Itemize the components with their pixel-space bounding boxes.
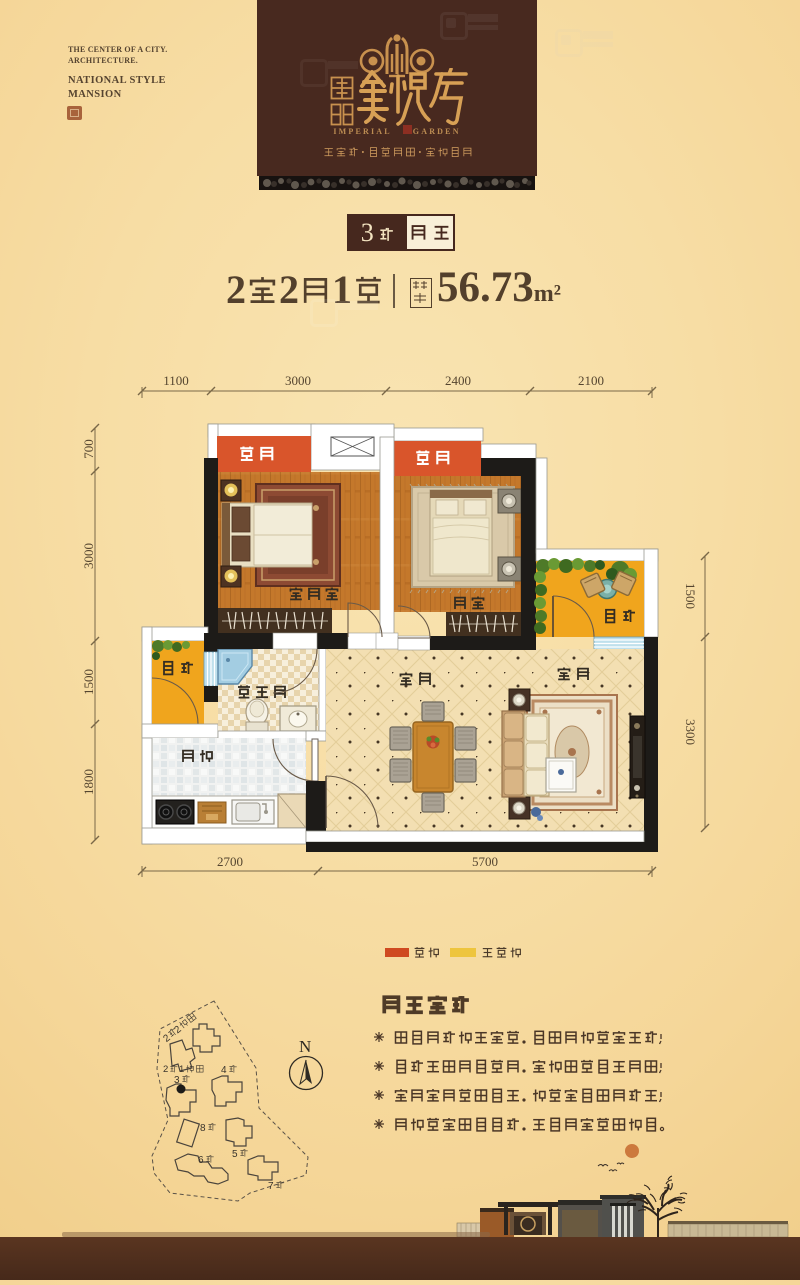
svg-text:5: 5: [232, 1149, 238, 1160]
svg-text:8: 8: [200, 1123, 206, 1134]
svg-text:700: 700: [81, 439, 96, 459]
svg-text:2700: 2700: [217, 854, 243, 869]
svg-text:1500: 1500: [683, 583, 698, 609]
svg-text:2400: 2400: [445, 373, 471, 388]
svg-text:3300: 3300: [683, 719, 698, 745]
svg-text:3000: 3000: [81, 543, 96, 569]
svg-text:1100: 1100: [163, 373, 189, 388]
svg-text:4: 4: [221, 1065, 227, 1076]
svg-text:6: 6: [198, 1155, 204, 1166]
svg-text:5700: 5700: [472, 854, 498, 869]
svg-text:3000: 3000: [285, 373, 311, 388]
svg-text:1: 1: [179, 1064, 184, 1075]
svg-text:2: 2: [163, 1064, 168, 1075]
svg-text:3: 3: [174, 1075, 180, 1086]
svg-text:7: 7: [268, 1181, 274, 1192]
svg-text:2100: 2100: [578, 373, 604, 388]
svg-text:1800: 1800: [81, 769, 96, 795]
svg-text:1500: 1500: [81, 669, 96, 695]
svg-text:N: N: [299, 1037, 311, 1056]
